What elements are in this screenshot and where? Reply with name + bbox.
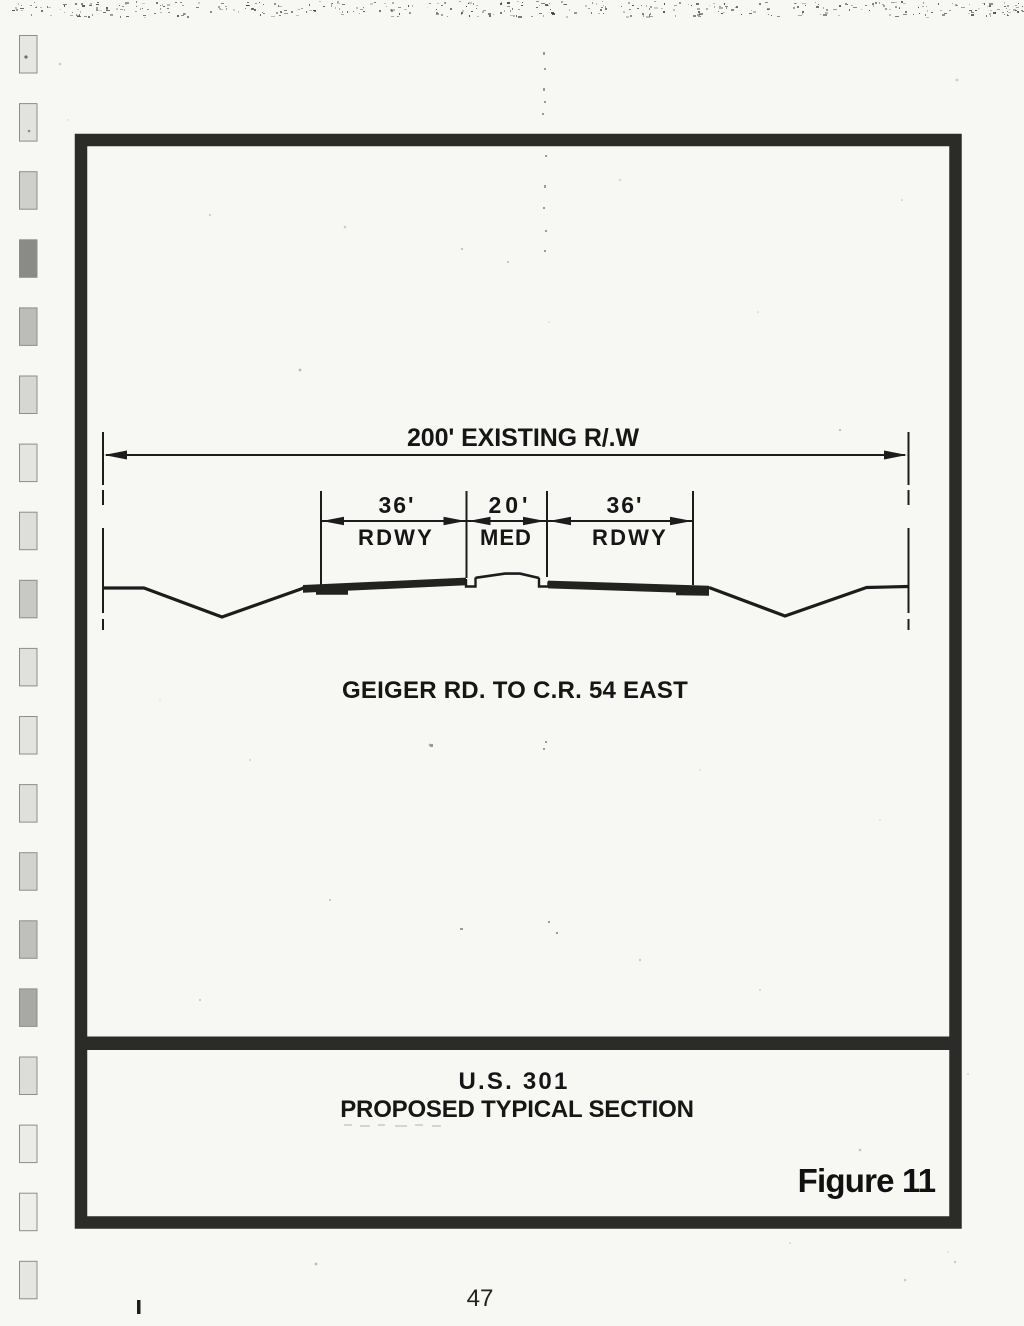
- svg-text:RDWY: RDWY: [592, 525, 668, 550]
- svg-text:36': 36': [378, 492, 415, 518]
- svg-text:36': 36': [606, 492, 643, 518]
- svg-text:MED: MED: [480, 525, 532, 550]
- svg-text:GEIGER RD. TO C.R. 54 EAST: GEIGER RD. TO C.R. 54 EAST: [342, 677, 688, 704]
- svg-text:PROPOSED TYPICAL SECTION: PROPOSED TYPICAL SECTION: [340, 1096, 693, 1123]
- svg-text:20': 20': [488, 492, 531, 518]
- svg-text:200' EXISTING R/.W: 200' EXISTING R/.W: [407, 424, 639, 452]
- svg-text:Figure 11: Figure 11: [798, 1162, 936, 1199]
- svg-text:47: 47: [467, 1285, 494, 1312]
- svg-text:U.S. 301: U.S. 301: [459, 1068, 570, 1095]
- svg-text:RDWY: RDWY: [358, 525, 434, 550]
